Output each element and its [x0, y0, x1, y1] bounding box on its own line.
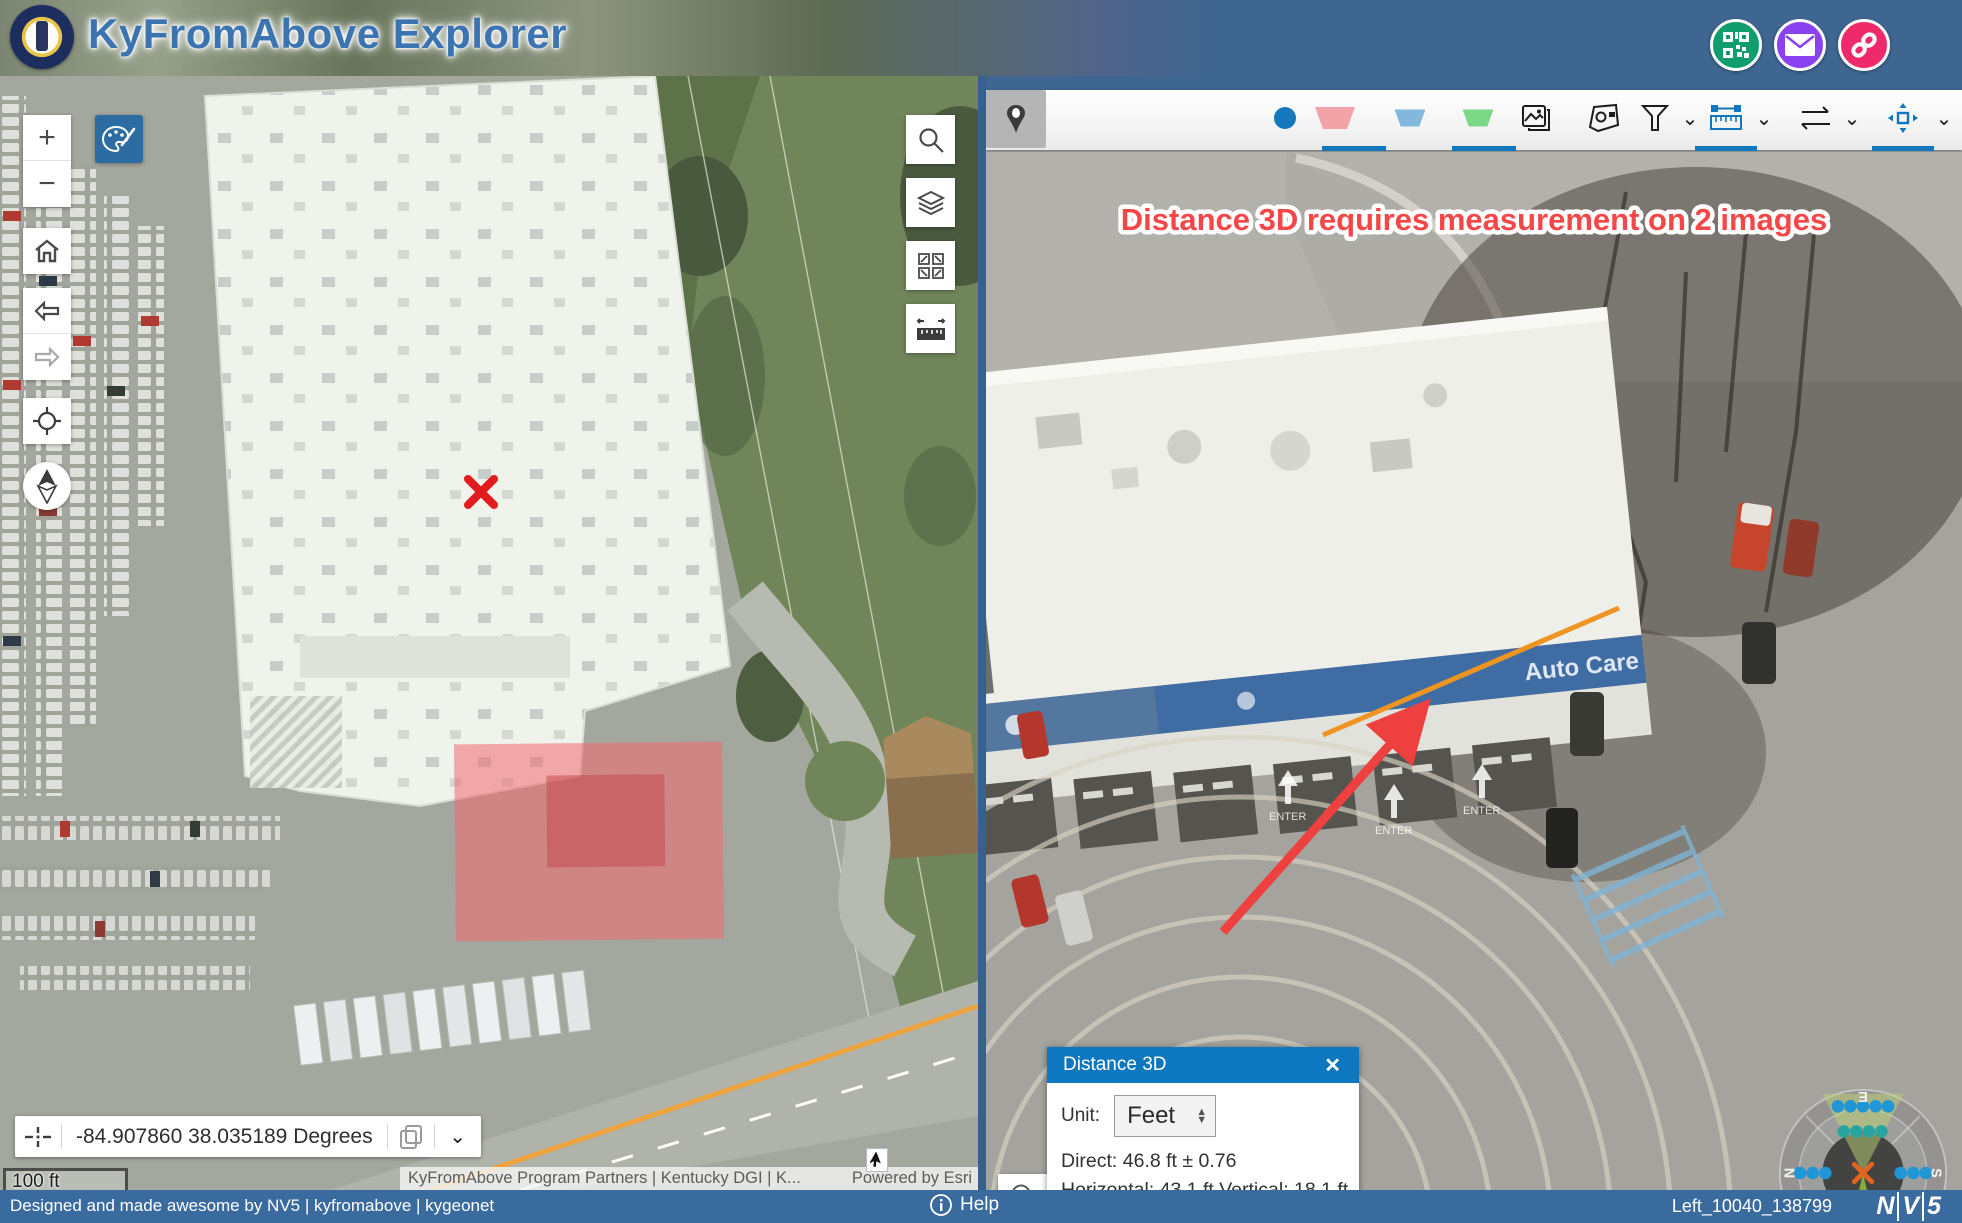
camera-orientation-button[interactable]	[1582, 90, 1626, 146]
oblique-footprint-toggle[interactable]	[1388, 90, 1432, 146]
mouse-cursor	[866, 1148, 888, 1172]
oblique-zoom-in-button[interactable]	[1010, 1183, 1036, 1191]
photos-icon	[1521, 104, 1551, 132]
help-label: Help	[960, 1194, 999, 1216]
coordinate-value: -84.907860 38.035189 Degrees	[62, 1116, 387, 1157]
nv5-logo: N V 5	[1873, 1193, 1944, 1219]
active-underline	[1452, 146, 1516, 151]
compass-letter-top: E	[1858, 1088, 1868, 1104]
current-image-id: Left_10040_138799	[1672, 1196, 1832, 1217]
oblique-toolbar: ⌄ ⌄ ⌄	[986, 90, 1962, 150]
compass-letter-right: S	[1928, 1168, 1944, 1178]
back-extent-button[interactable]	[23, 288, 71, 334]
compass-reset-button[interactable]	[23, 462, 71, 510]
credit-text: Designed and made awesome by NV5 | kyfro…	[10, 1196, 494, 1216]
arrow-left-icon	[34, 301, 60, 321]
active-underline	[1695, 146, 1757, 151]
envelope-icon	[1785, 34, 1815, 56]
panel-divider[interactable]	[978, 76, 986, 1190]
chevron-down-icon: ⌄	[449, 1124, 466, 1149]
kentucky-seal-logo	[10, 5, 74, 69]
image-footprint-overlay	[454, 742, 724, 942]
scale-bar-label: 100 ft	[12, 1171, 60, 1190]
quad-view-button[interactable]	[906, 241, 955, 290]
oblique-top-strip	[986, 76, 1962, 90]
swap-dropdown[interactable]: ⌄	[1838, 90, 1866, 146]
active-underline	[1872, 146, 1934, 151]
pan-move-icon	[1887, 102, 1919, 134]
status-bar: Designed and made awesome by NV5 | kyfro…	[0, 1190, 1962, 1223]
swap-images-button[interactable]	[1794, 90, 1838, 146]
layers-button[interactable]	[906, 178, 955, 227]
map-pin-icon	[1006, 104, 1026, 134]
arrow-right-icon	[34, 347, 60, 367]
close-button[interactable]: ✕	[1318, 1052, 1347, 1079]
oblique-image-viewport[interactable]: Auto Care	[986, 152, 1962, 1190]
qr-code-icon	[1723, 32, 1749, 58]
oblique-photo-art: Auto Care	[986, 152, 1962, 1190]
zoom-out-label: −	[38, 167, 56, 201]
image-gallery-button[interactable]	[1514, 90, 1558, 146]
home-icon	[34, 239, 60, 263]
pan-dropdown[interactable]: ⌄	[1930, 90, 1958, 146]
reading-direct: Direct: 46.8 ft ± 0.76	[1061, 1147, 1345, 1176]
compass-letter-left: N	[1781, 1168, 1797, 1178]
home-extent-button[interactable]	[23, 228, 71, 274]
basemap-style-button[interactable]	[95, 115, 143, 163]
chevron-down-icon: ⌄	[1682, 106, 1699, 131]
oblique-panel: ⌄ ⌄ ⌄	[986, 76, 1962, 1190]
swipe-measure-button[interactable]	[906, 304, 955, 353]
marker-tool-button[interactable]	[986, 90, 1046, 148]
zoom-out-button[interactable]: −	[23, 161, 71, 207]
app-header: KyFromAbove Explorer	[0, 0, 1962, 76]
close-icon: ✕	[1324, 1055, 1341, 1077]
info-icon	[930, 1194, 952, 1216]
unit-select[interactable]: Feet ▲▼	[1114, 1095, 1216, 1137]
copy-icon	[399, 1124, 423, 1150]
trapezoid-pink-icon	[1313, 105, 1357, 131]
copy-coordinates-button[interactable]	[388, 1116, 434, 1157]
oblique-zoom-controls	[998, 1174, 1047, 1190]
link-icon	[1850, 31, 1878, 59]
chevron-down-icon: ⌄	[1756, 106, 1773, 131]
nadir-footprint-toggle[interactable]	[1308, 90, 1362, 146]
reading-horizontal-vertical: Horizontal: 43.1 ft Vertical: 18.1 ft	[1061, 1176, 1345, 1191]
swap-arrows-icon	[1800, 105, 1832, 131]
palette-brush-icon	[102, 123, 136, 155]
measure-dropdown[interactable]: ⌄	[1750, 90, 1778, 146]
quad-view-icon	[917, 252, 945, 280]
scale-bar: 100 ft	[3, 1168, 128, 1190]
spinner-arrows-icon: ▲▼	[1196, 1108, 1207, 1124]
svg-text:ENTER: ENTER	[1463, 805, 1500, 817]
pan-select-tool-button[interactable]	[1880, 90, 1926, 146]
oblique-compass-rose[interactable]: E S W N	[1776, 1086, 1950, 1190]
zoom-in-label: +	[38, 121, 56, 155]
zoom-in-magnifier-icon	[1010, 1183, 1036, 1191]
measure-ruler-icon	[1709, 104, 1743, 132]
coordinate-widget: -84.907860 38.035189 Degrees ⌄	[15, 1116, 481, 1157]
compass-needle-icon	[36, 468, 58, 504]
help-button[interactable]: Help	[930, 1194, 999, 1216]
selected-footprint-toggle[interactable]	[1456, 90, 1500, 146]
aerial-map-art	[0, 76, 978, 1190]
locate-crosshair-icon	[33, 407, 61, 435]
layers-icon	[917, 190, 945, 216]
distance-3d-title: Distance 3D	[1063, 1054, 1167, 1076]
zoom-in-button[interactable]: +	[23, 115, 71, 161]
filter-button[interactable]	[1636, 90, 1674, 146]
forward-extent-button[interactable]	[23, 334, 71, 380]
measurement-point-marker	[462, 473, 500, 511]
locate-me-button[interactable]	[23, 398, 71, 444]
kyfromabove-app: KyFromAbove Explorer	[0, 0, 1962, 1223]
footprint-building-roof	[546, 774, 665, 867]
search-button[interactable]	[906, 115, 955, 164]
attribution-text: KyFromAbove Program Partners | Kentucky …	[408, 1169, 801, 1188]
measure-tool-button[interactable]	[1704, 90, 1748, 146]
share-link-button[interactable]	[1838, 19, 1890, 71]
chevron-down-icon: ⌄	[1936, 106, 1953, 131]
search-icon	[918, 127, 944, 153]
email-button[interactable]	[1774, 19, 1826, 71]
filter-dropdown[interactable]: ⌄	[1676, 90, 1704, 146]
oblique-camera-icon	[1588, 103, 1620, 133]
unit-value: Feet	[1127, 1102, 1175, 1130]
filter-funnel-icon	[1641, 103, 1669, 133]
point-footprint-toggle[interactable]	[1270, 90, 1300, 146]
coordinate-format-dropdown[interactable]: ⌄	[435, 1116, 481, 1157]
swipe-measure-icon	[916, 315, 946, 343]
unit-label: Unit:	[1061, 1105, 1100, 1127]
page-title: KyFromAbove Explorer	[88, 10, 567, 58]
distance-3d-panel: Distance 3D ✕ Unit: Feet ▲▼ Direct: 46.8…	[1047, 1047, 1359, 1190]
map-panel[interactable]: + −	[0, 76, 978, 1190]
coordinate-crosshair-icon	[15, 1116, 61, 1157]
qr-code-button[interactable]	[1710, 19, 1762, 71]
trapezoid-green-icon	[1461, 107, 1495, 129]
restaurant-building	[882, 713, 978, 859]
dot-icon	[1273, 106, 1297, 130]
trapezoid-blue-icon	[1393, 107, 1427, 129]
active-underline	[1322, 146, 1386, 151]
svg-text:ENTER: ENTER	[1375, 825, 1412, 837]
chevron-down-icon: ⌄	[1844, 106, 1861, 131]
distance-3d-header[interactable]: Distance 3D ✕	[1047, 1047, 1359, 1083]
svg-text:ENTER: ENTER	[1269, 811, 1306, 823]
map-attribution: KyFromAbove Program Partners | Kentucky …	[400, 1167, 978, 1190]
